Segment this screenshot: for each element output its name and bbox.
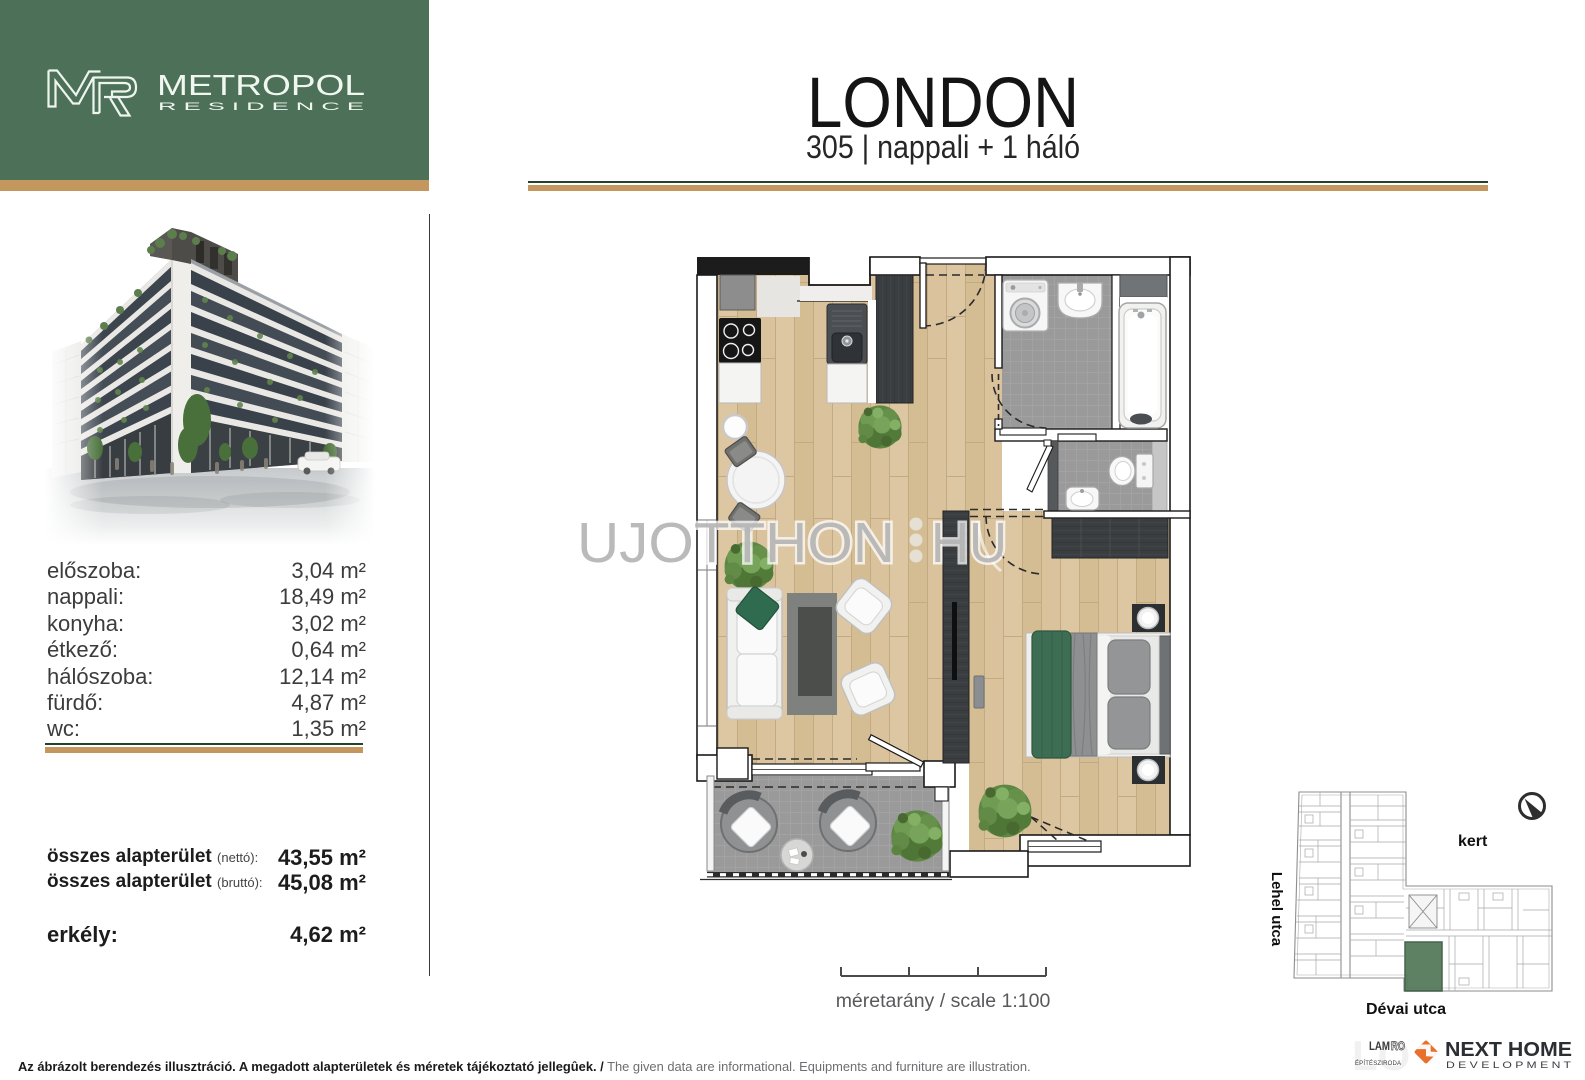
svg-text:Dévai utca: Dévai utca	[1366, 1001, 1446, 1018]
svg-text:R E S I D E N C E: R E S I D E N C E	[158, 101, 364, 113]
svg-text:RO: RO	[1391, 1041, 1405, 1053]
svg-text:305 | nappali + 1 háló: 305 | nappali + 1 háló	[806, 129, 1080, 165]
svg-text:UJOTTHON: UJOTTHON	[577, 511, 895, 575]
svg-text:LO: LO	[1352, 1032, 1410, 1075]
svg-text:METROPOL: METROPOL	[157, 70, 365, 102]
svg-text:Lehel utca: Lehel utca	[1268, 872, 1285, 947]
svg-text:NEXT HOME: NEXT HOME	[1445, 1039, 1572, 1061]
svg-text:ÉPÍTÉSZIRODA: ÉPÍTÉSZIRODA	[1355, 1060, 1401, 1067]
svg-text:HU: HU	[931, 511, 1007, 575]
svg-text:méretarány / scale 1:100: méretarány / scale 1:100	[836, 990, 1051, 1012]
svg-text:LAM: LAM	[1369, 1041, 1390, 1053]
svg-text:D E V E L O P M E N T: D E V E L O P M E N T	[1446, 1060, 1572, 1070]
svg-text:kert: kert	[1458, 833, 1488, 850]
